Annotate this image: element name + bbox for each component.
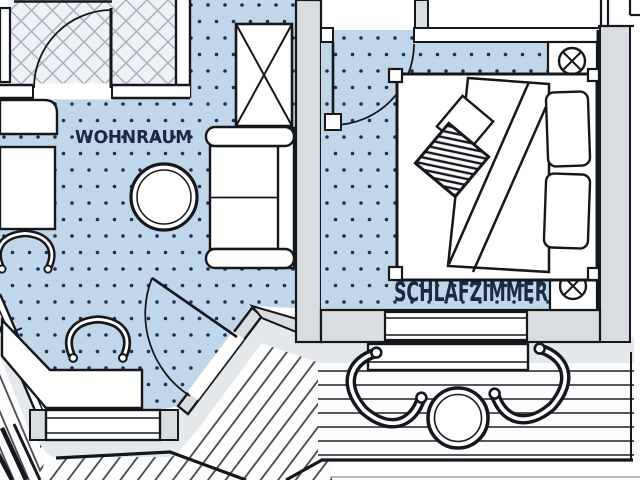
door-opening — [33, 84, 112, 100]
window — [46, 410, 160, 440]
schlafzimmer-label: SCHLAFZIMMER — [394, 277, 548, 308]
bed-post — [588, 69, 599, 81]
bay-window-wall-bottom — [30, 410, 178, 440]
bathroom — [0, 0, 190, 100]
bed-post — [389, 69, 402, 82]
wohnraum-label: WOHNRAUM — [75, 127, 192, 148]
window — [385, 312, 527, 340]
floor-plan-drawing: WOHNRAUM — [0, 0, 640, 480]
bedroom-bottom-wall — [321, 310, 600, 342]
round-table — [131, 164, 197, 230]
bedroom-right-wall — [598, 26, 630, 342]
door-stop — [325, 114, 341, 130]
counter — [0, 100, 57, 134]
pillow — [546, 91, 591, 166]
circled-x-symbol — [559, 48, 585, 74]
interior-wall — [296, 0, 321, 342]
sofa — [206, 127, 294, 268]
wall — [176, 0, 190, 98]
pillow — [544, 173, 591, 248]
side-table — [0, 147, 55, 229]
bed-post — [588, 268, 599, 280]
wardrobe — [236, 24, 292, 126]
terrace-table — [428, 388, 488, 448]
window-bench — [368, 344, 528, 370]
double-bed — [389, 69, 599, 280]
bath-fixture — [0, 8, 10, 82]
floor-plan-page: WOHNRAUM — [0, 0, 640, 480]
